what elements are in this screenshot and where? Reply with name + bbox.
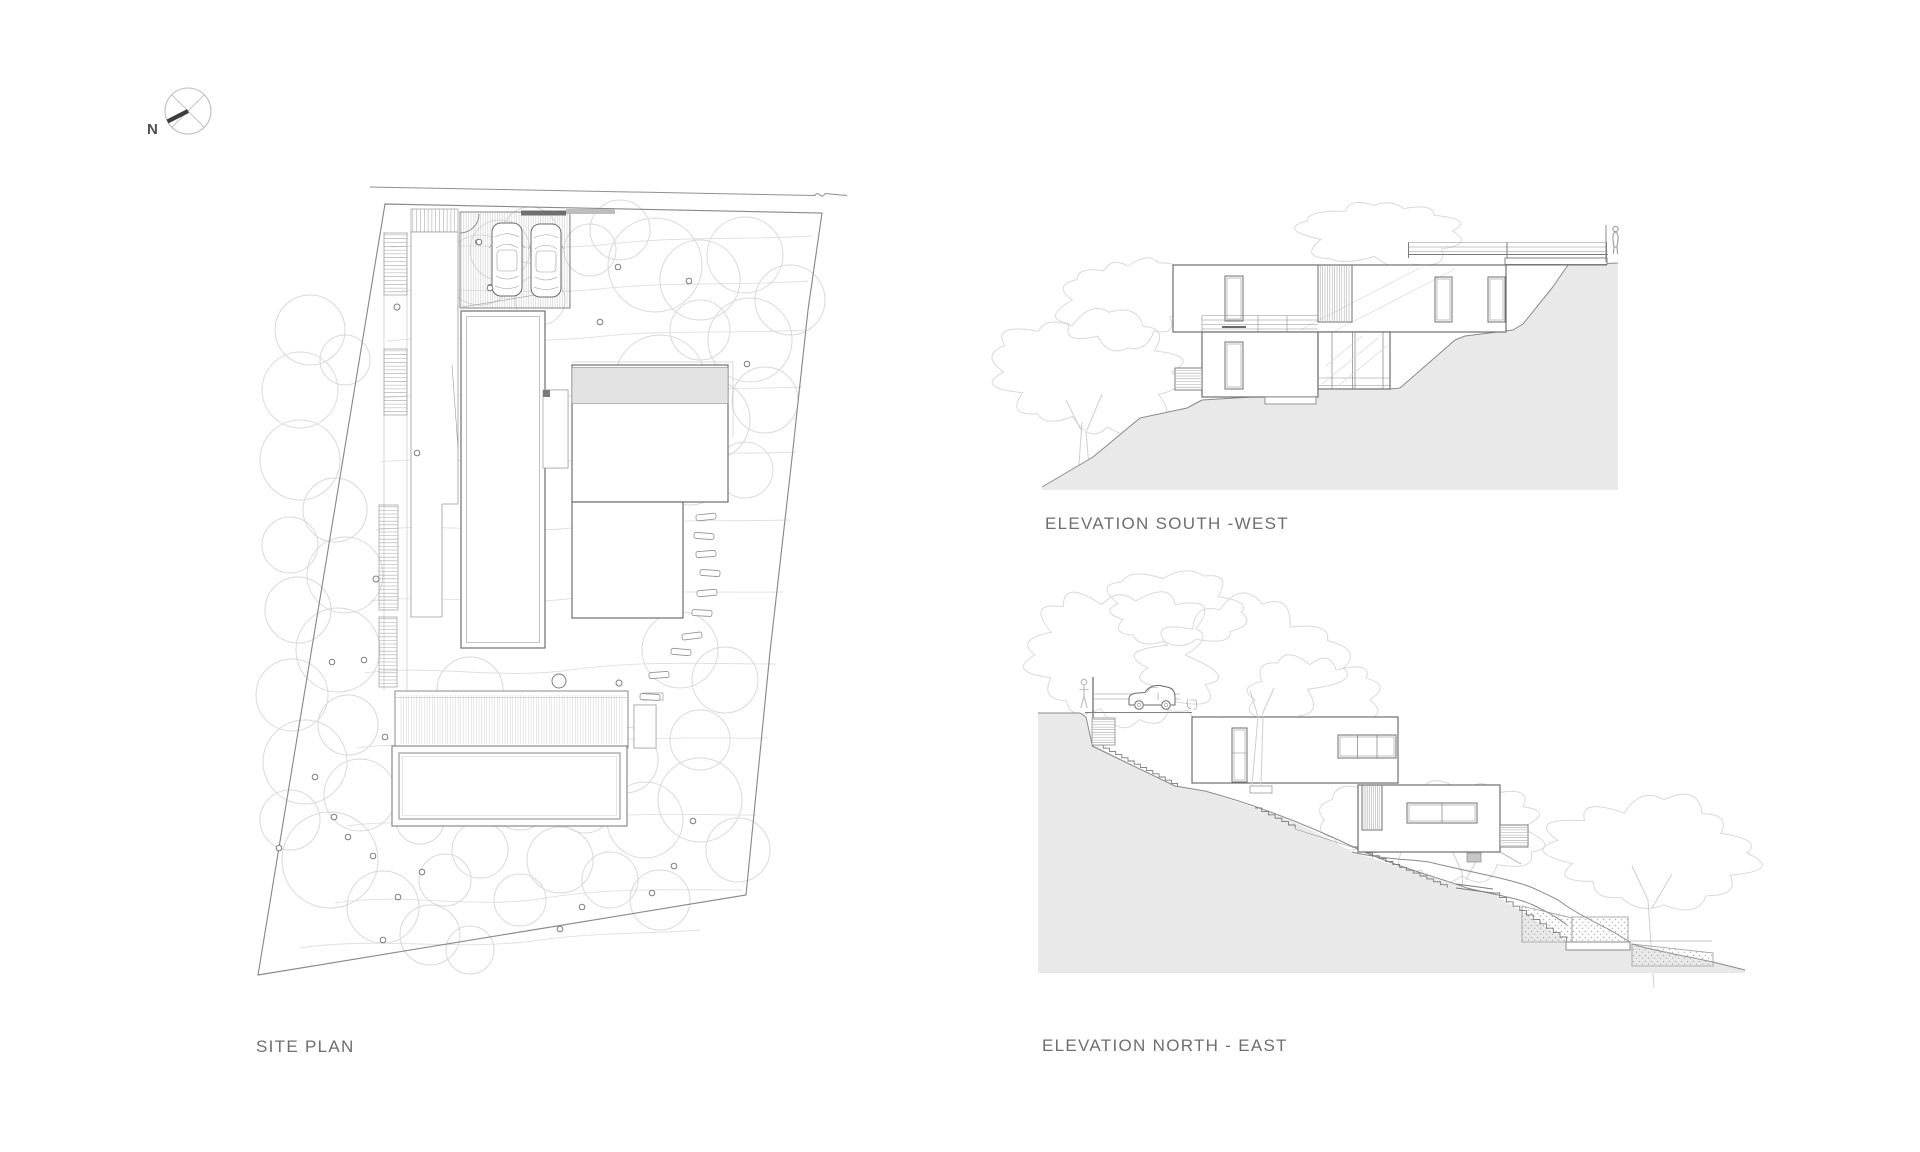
architecture-sheet: { "sheet": { "background": "#ffffff" }, … (0, 0, 1920, 1152)
car-side-icon (1129, 685, 1175, 709)
roof-terrace-band (572, 368, 728, 404)
house-upper-floor (1192, 717, 1398, 793)
foundation-box (1467, 853, 1481, 862)
elevation-ne-drawing (1030, 575, 1745, 980)
person-icon (1613, 226, 1618, 253)
contour-lines (300, 236, 812, 948)
north-compass-icon (126, 72, 250, 164)
swimming-pool (392, 746, 627, 826)
garage-wall-dark (521, 211, 566, 216)
entry-corridor (411, 232, 458, 617)
deck-stair (634, 705, 656, 748)
deck-slab (1505, 258, 1607, 265)
elevation-sw-drawing (1000, 195, 1640, 500)
elevation-ne-label: ELEVATION NORTH - EAST (1042, 1036, 1288, 1056)
vent-louver (1500, 825, 1528, 847)
garage-wall-light (566, 209, 615, 214)
person-icon (1080, 679, 1088, 707)
compass-north-letter: N (147, 121, 158, 138)
site-plan-label: SITE PLAN (256, 1037, 355, 1057)
main-house-footprint (543, 362, 733, 618)
road-edge-line (370, 187, 847, 196)
elevation-sw-label: ELEVATION SOUTH -WEST (1045, 514, 1289, 534)
car-top-icon (489, 223, 525, 296)
plinth (1265, 397, 1316, 404)
deck-terrace (395, 674, 663, 748)
tall-building-footprint (461, 311, 545, 648)
glazed-wall (1318, 332, 1390, 389)
house-lower-floor (1358, 785, 1528, 864)
house-lower-floor (1175, 332, 1318, 404)
walkway-railing (1408, 225, 1608, 265)
site-plan-drawing (230, 180, 850, 990)
house-stair (543, 390, 568, 468)
house-upper-floor (1173, 265, 1506, 332)
car-top-icon (528, 224, 564, 297)
